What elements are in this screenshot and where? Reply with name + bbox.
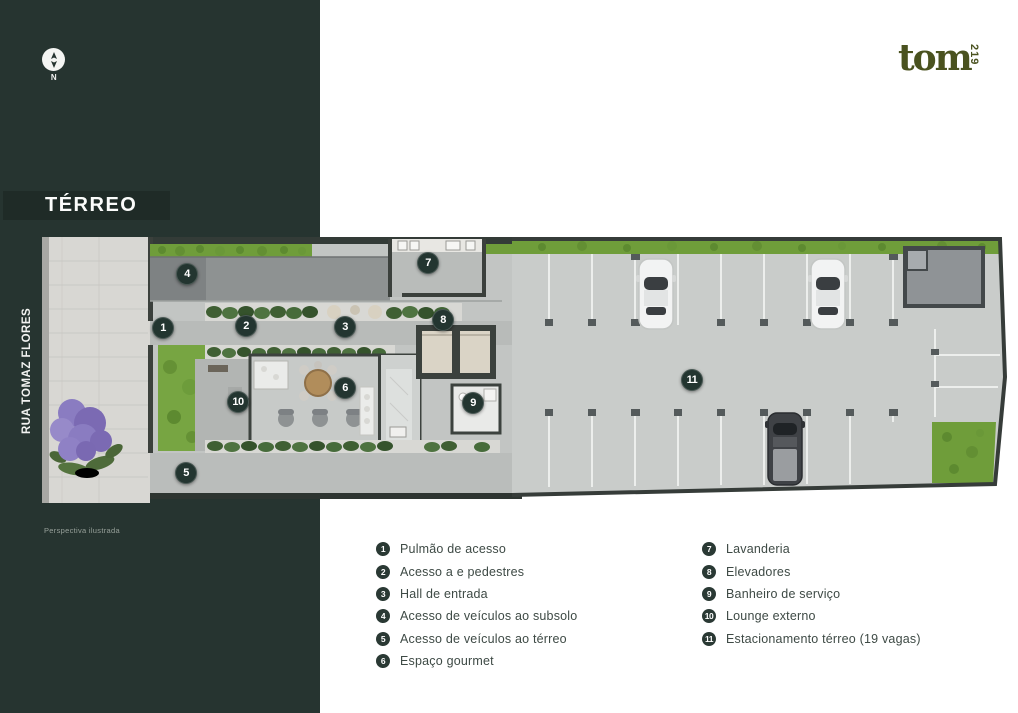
legend-label: Lounge externo [726,609,816,623]
legend-column-left: 1Pulmão de acesso2Acesso a e pedestres3H… [376,538,577,672]
legend-badge-6: 6 [376,654,390,668]
legend-item-4: 4Acesso de veículos ao subsolo [376,605,577,627]
plan-badge-8: 8 [432,309,454,331]
legend-label: Acesso a e pedestres [400,565,524,579]
car-dark-icon [765,413,805,485]
legend-label: Estacionamento térreo (19 vagas) [726,632,921,646]
car-white-1-icon [636,259,676,329]
legend-label: Lavanderia [726,542,790,556]
plan-badge-1: 1 [152,317,174,339]
legend-label: Espaço gourmet [400,654,494,668]
brand-logo-number: 219 [968,44,980,78]
legend-label: Hall de entrada [400,587,488,601]
plan-badge-3: 3 [334,316,356,338]
compass-icon: N [42,48,66,84]
elevators [416,325,496,379]
legend-badge-4: 4 [376,609,390,623]
plan-badge-11: 11 [681,369,703,391]
legend-item-2: 2Acesso a e pedestres [376,560,577,582]
terreo-driveway [150,453,522,495]
brand-logo-text: tom [898,40,971,76]
plan-badge-2: 2 [235,315,257,337]
legend-badge-11: 11 [702,632,716,646]
legend-item-7: 7Lavanderia [702,538,921,560]
legend-label: Pulmão de acesso [400,542,506,556]
legend-item-5: 5Acesso de veículos ao térreo [376,628,577,650]
legend-badge-8: 8 [702,565,716,579]
hedge-strip-bottom [205,440,500,453]
plan-badge-5: 5 [175,462,197,484]
legend-item-6: 6Espaço gourmet [376,650,577,672]
illustration-caption: Perspectiva ilustrada [44,526,120,535]
legend-item-3: 3Hall de entrada [376,583,577,605]
legend-badge-5: 5 [376,632,390,646]
compass-label: N [42,73,66,82]
floor-plan: 1234567891011 [42,237,1008,503]
brand-logo: tom 219 [898,40,986,82]
legend-badge-10: 10 [702,609,716,623]
legend-label: Acesso de veículos ao subsolo [400,609,577,623]
compass-north-icon [42,48,65,71]
legend-label: Banheiro de serviço [726,587,840,601]
plan-badge-9: 9 [462,392,484,414]
page-title: TÉRREO [3,194,137,217]
legend-badge-7: 7 [702,542,716,556]
plan-badge-6: 6 [334,377,356,399]
plan-badge-10: 10 [227,391,249,413]
technical-room [905,248,983,306]
legend-badge-2: 2 [376,565,390,579]
legend-item-8: 8Elevadores [702,560,921,582]
building-area [148,237,522,499]
legend-label: Acesso de veículos ao térreo [400,632,567,646]
floor-title-box: TÉRREO [3,191,170,220]
street-area [42,237,150,503]
legend-badge-9: 9 [702,587,716,601]
car-white-2-icon [808,259,848,329]
parking-area [512,239,1005,495]
legend-item-11: 11Estacionamento térreo (19 vagas) [702,628,921,650]
compass-needle-icon [48,52,60,68]
legend-item-9: 9Banheiro de serviço [702,583,921,605]
street-name-label: RUA TOMAZ FLORES [21,318,43,434]
legend-item-1: 1Pulmão de acesso [376,538,577,560]
plan-badge-4: 4 [176,263,198,285]
legend-badge-3: 3 [376,587,390,601]
legend-item-10: 10Lounge externo [702,605,921,627]
grass-patch-bottom-right [932,422,996,483]
legend-label: Elevadores [726,565,791,579]
legend-badge-1: 1 [376,542,390,556]
plan-badge-7: 7 [417,252,439,274]
legend-column-right: 7Lavanderia8Elevadores9Banheiro de servi… [702,538,921,650]
